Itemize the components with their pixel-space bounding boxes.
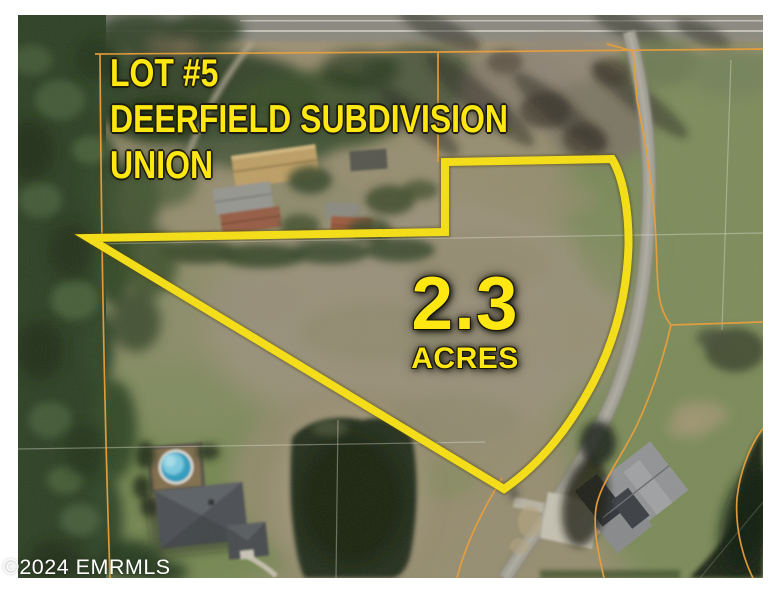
acreage-label: 2.3 ACRES <box>396 268 534 374</box>
acreage-value: 2.3 <box>396 268 534 338</box>
lot-title: LOT #5 DEERFIELD SUBDIVISION UNION <box>110 51 508 189</box>
lot-title-line1: LOT #5 <box>110 51 508 97</box>
acreage-unit: ACRES <box>396 344 534 374</box>
listing-photo-page: LOT #5 DEERFIELD SUBDIVISION UNION 2.3 A… <box>0 0 776 600</box>
lot-title-line2: DEERFIELD SUBDIVISION <box>110 97 508 143</box>
lot-title-line3: UNION <box>110 143 508 189</box>
copyright-watermark: ©2024 EMRMLS <box>3 555 171 580</box>
